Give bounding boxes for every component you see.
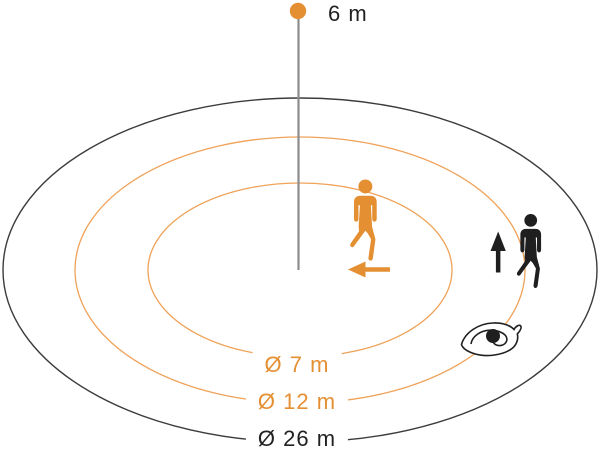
radial-direction-arrow-icon [491, 232, 506, 273]
walking-person-orange-icon [350, 180, 377, 261]
eye-pupil [486, 329, 500, 343]
sensor-dot-icon [290, 3, 306, 19]
detection-range-diagram: 6 m Ø 7 m Ø 12 m Ø 26 m [0, 0, 600, 458]
mounting-height-label: 6 m [328, 1, 368, 26]
zone-label-12m: Ø 12 m [246, 389, 348, 414]
tangential-direction-arrow-icon [348, 262, 390, 278]
walking-person-black-icon [517, 214, 541, 288]
sensor-eye-icon [462, 323, 522, 356]
detection-zone-7m-ellipse [148, 183, 452, 357]
zone-label-7m: Ø 7 m [253, 352, 342, 377]
zone-label-26m: Ø 26 m [246, 426, 348, 451]
